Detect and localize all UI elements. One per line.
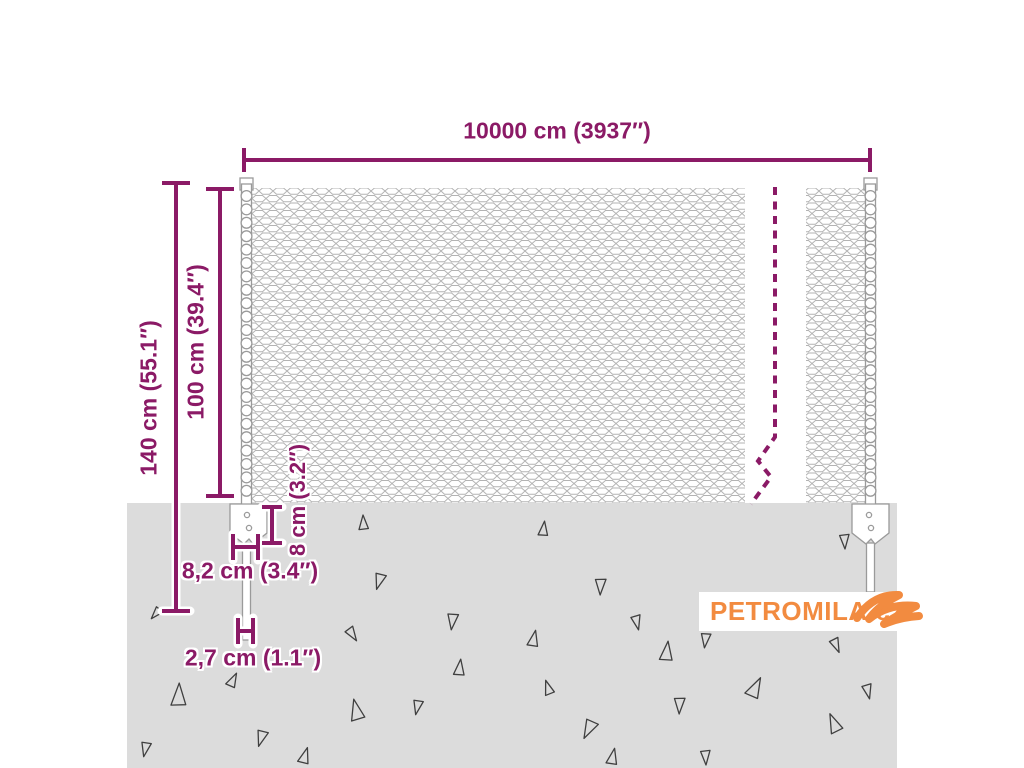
post-wire-knuckle (241, 485, 252, 496)
post-wire-knuckle (241, 204, 252, 215)
post-wire-knuckle (865, 298, 876, 309)
label-total-width: 10000 cm (3937″) (463, 118, 650, 145)
post-wire-knuckle (865, 271, 876, 282)
post-wire-knuckle (241, 405, 252, 416)
post-wire-knuckle (241, 217, 252, 228)
post-wire-knuckle (865, 392, 876, 403)
right-post-stake (867, 543, 875, 592)
post-wire-knuckle (241, 365, 252, 376)
post-wire-knuckle (241, 459, 252, 470)
post-wire-knuckle (241, 271, 252, 282)
post-wire-knuckle (241, 418, 252, 429)
post-wire-knuckle (241, 244, 252, 255)
dim-mesh-height-line (206, 189, 234, 496)
post-wire-knuckle (865, 432, 876, 443)
label-anchor-width: 8,2 cm (3.4″) (182, 558, 318, 585)
break-dashed-line (751, 187, 775, 504)
post-wire-knuckle (241, 311, 252, 322)
post-wire-knuckle (865, 351, 876, 362)
post-wire-knuckle (865, 217, 876, 228)
post-wire-knuckle (865, 472, 876, 483)
post-wire-knuckle (865, 284, 876, 295)
post-wire-knuckle (865, 191, 876, 202)
post-wire-knuckle (241, 231, 252, 242)
fence-mesh-right (806, 188, 865, 503)
post-wire-knuckle (865, 365, 876, 376)
post-wire-knuckle (865, 405, 876, 416)
post-wire-knuckle (241, 325, 252, 336)
label-total-height: 140 cm (55.1″) (136, 320, 163, 476)
post-wire-knuckle (241, 351, 252, 362)
dim-total-width-line (244, 148, 870, 172)
post-wire-knuckle (865, 459, 876, 470)
label-mesh-height: 100 cm (39.4″) (183, 264, 210, 420)
post-wire-knuckle (241, 445, 252, 456)
post-wire-knuckle (865, 258, 876, 269)
label-anchor-height: 8 cm (3.2″) (285, 444, 311, 556)
post-wire-knuckle (865, 338, 876, 349)
post-wire-knuckle (865, 378, 876, 389)
post-wire-knuckle (865, 418, 876, 429)
right-post-anchor (852, 504, 889, 544)
post-wire-knuckle (865, 231, 876, 242)
post-wire-knuckle (865, 445, 876, 456)
post-wire-knuckle (241, 298, 252, 309)
post-wire-knuckle (241, 258, 252, 269)
fence-mesh-left (252, 188, 745, 503)
label-post-diameter: 2,7 cm (1.1″) (185, 645, 321, 672)
post-wire-knuckle (241, 338, 252, 349)
post-wire-knuckle (865, 485, 876, 496)
watermark-logo-text: PETROMILA.cz (710, 596, 860, 627)
post-wire-knuckle (241, 392, 252, 403)
post-wire-knuckle (865, 325, 876, 336)
post-wire-knuckle (241, 472, 252, 483)
post-wire-knuckle (241, 378, 252, 389)
post-wire-knuckle (241, 191, 252, 202)
post-wire-knuckle (865, 204, 876, 215)
post-wire-knuckle (865, 244, 876, 255)
product-diagram: 10000 cm (3937″) 140 cm (55.1″) 100 cm (… (0, 0, 1024, 768)
post-wire-knuckle (865, 311, 876, 322)
post-wire-knuckle (241, 432, 252, 443)
post-wire-knuckle (241, 284, 252, 295)
